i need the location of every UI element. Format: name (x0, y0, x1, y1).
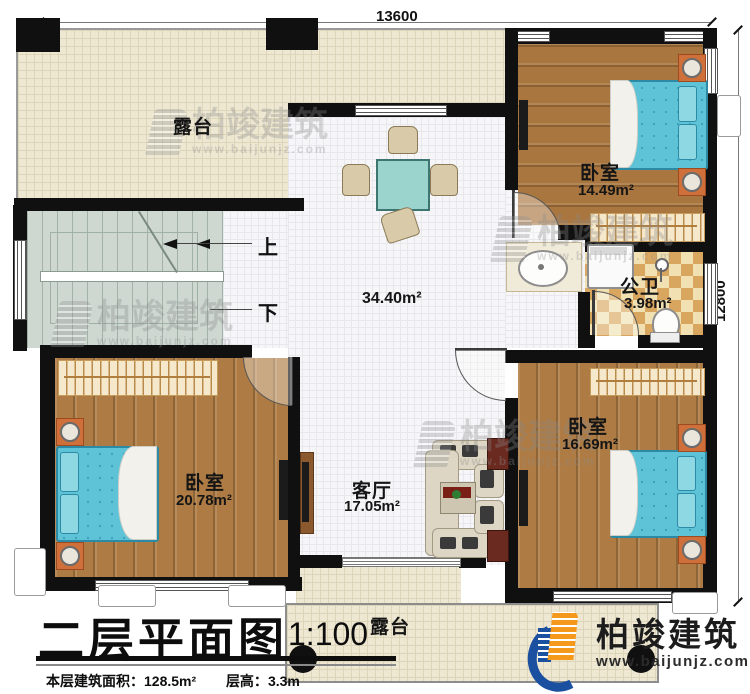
stair-rail (40, 271, 224, 282)
pillow (677, 456, 696, 491)
shower-hose (660, 268, 662, 282)
wardrobe (590, 213, 705, 242)
side-table (487, 530, 509, 562)
wardrobe (590, 368, 705, 396)
wardrobe-rod (596, 225, 697, 227)
stair-arrow (163, 239, 177, 249)
wardrobe-rod (64, 376, 210, 378)
room-area-bedroom-br: 16.69m² (562, 436, 618, 453)
nightstand-lamp (60, 546, 80, 566)
wall (14, 198, 304, 211)
wardrobe (58, 360, 218, 396)
floor-plan-canvas: 13600 12800 (0, 0, 750, 694)
hall-area: 34.40m² (362, 290, 422, 308)
room-label-terrace-top: 露台 (173, 112, 213, 139)
wall (296, 555, 342, 568)
company-logo-icon (528, 612, 586, 676)
pilaster (14, 548, 46, 596)
armchair-cushion (480, 470, 494, 488)
nightstand-lamp (682, 172, 702, 192)
info-area-label: 本层建筑面积： (46, 673, 144, 689)
terrace-top-floor-strip (295, 30, 507, 105)
plant (452, 490, 461, 499)
wall (505, 350, 717, 363)
dining-chair (430, 164, 458, 196)
shower-head (655, 258, 669, 272)
title-rule-thick (36, 656, 396, 661)
stair-down-label: 下 (258, 297, 278, 326)
nightstand-lamp (682, 540, 702, 560)
pillow (678, 86, 697, 122)
wardrobe-rod (596, 380, 697, 382)
room-area-bathroom: 3.98m² (624, 295, 672, 312)
pillow (678, 124, 697, 160)
room-area-living: 17.05m² (344, 498, 400, 515)
toilet-tank (650, 332, 680, 343)
side-table (487, 438, 509, 470)
room-area-bedroom-tr: 14.49m² (578, 182, 634, 199)
company-url: www.baijunjz.com (596, 653, 749, 670)
stair-arrow (196, 239, 210, 249)
bed-blanket (610, 80, 638, 168)
pillar (266, 18, 318, 50)
washing-machine-panel (590, 247, 627, 255)
company-name: 柏竣建筑 (596, 618, 749, 653)
terrace-bottom-floor-upper (296, 566, 461, 606)
window (355, 105, 447, 116)
title-rule-thin (36, 664, 396, 666)
info-area-value: 128.5m² (144, 673, 196, 689)
plan-scale: 1:100 (288, 616, 368, 653)
dining-chair (342, 164, 370, 196)
pillow (60, 452, 79, 492)
wall (585, 335, 595, 348)
room-label-bedroom-br: 卧室 (568, 412, 608, 439)
pillow (60, 494, 79, 534)
dimension-label-top: 13600 (376, 8, 418, 25)
tv (279, 460, 288, 520)
terrace-railing (18, 28, 507, 30)
room-label-bedroom-tr: 卧室 (580, 158, 620, 185)
terrace-top-floor (18, 30, 295, 200)
stair-arrow-line (210, 309, 252, 310)
sofa-cushion (462, 445, 478, 457)
company-logo: 柏竣建筑 www.baijunjz.com (528, 612, 749, 676)
terrace-railing (16, 28, 18, 200)
nightstand-lamp (60, 422, 80, 442)
stair-arrow-line (177, 243, 252, 244)
nightstand-lamp (682, 58, 702, 78)
info-height-value: 3.3m (268, 673, 300, 689)
sofa-cushion (462, 537, 478, 549)
wall (505, 28, 518, 190)
wall (40, 345, 252, 358)
nightstand-lamp (682, 428, 702, 448)
pilaster (717, 95, 741, 137)
room-label-terrace-bottom: 露台 (370, 612, 410, 639)
dining-table (376, 159, 430, 211)
window (704, 263, 718, 325)
stair-up-label: 上 (258, 231, 278, 260)
window (553, 591, 672, 602)
tv (302, 462, 309, 522)
hall-floor-landing (223, 211, 288, 348)
room-area-bedroom-bl: 20.78m² (176, 492, 232, 509)
tv (519, 100, 528, 150)
pillow (677, 493, 696, 528)
bed-blanket (610, 450, 638, 536)
pilaster (672, 592, 718, 614)
sofa-cushion (440, 537, 456, 549)
sink-drain (538, 264, 544, 270)
dining-chair (388, 126, 418, 154)
info-height-label: 层高： (226, 673, 268, 689)
window (14, 240, 27, 320)
bed-blanket (118, 446, 157, 540)
title-info-line: 本层建筑面积：128.5m² 层高：3.3m (46, 671, 300, 691)
room-label-bedroom-bl: 卧室 (185, 468, 225, 495)
pillar (16, 18, 60, 52)
armchair-cushion (480, 506, 494, 524)
sliding-door (342, 557, 461, 567)
tv (519, 470, 528, 526)
